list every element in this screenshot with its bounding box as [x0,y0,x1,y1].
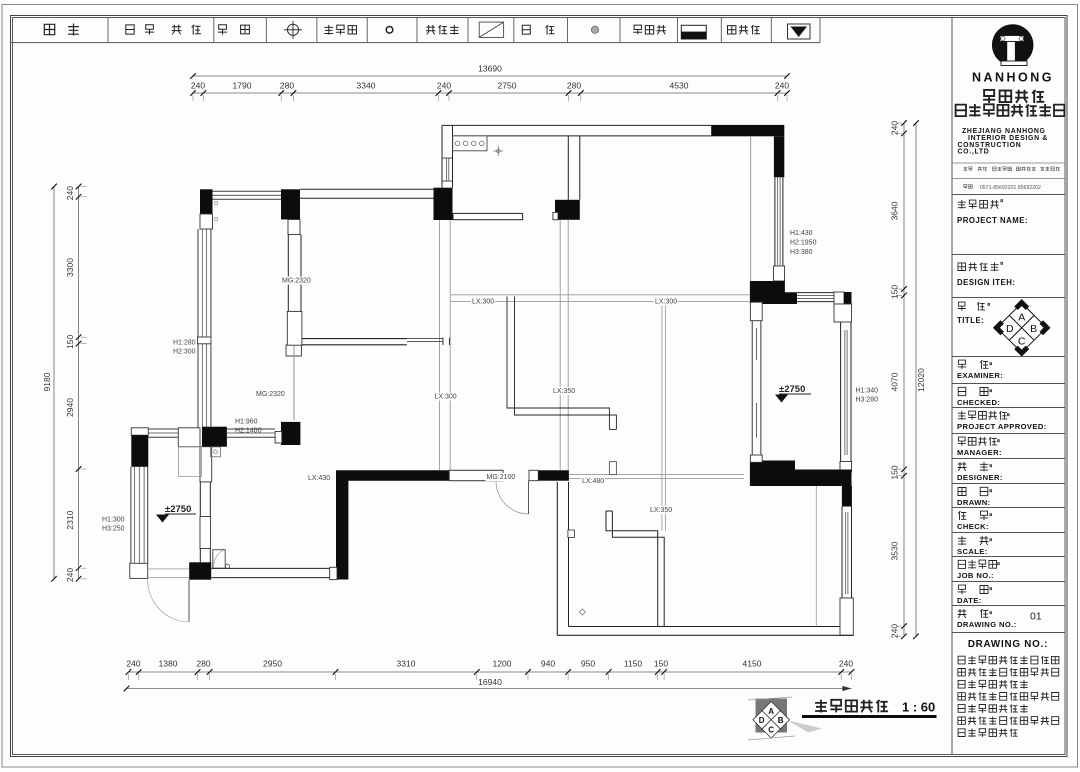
svg-text:280: 280 [196,659,210,669]
svg-text:H1:340: H1:340 [856,388,879,395]
svg-text:3300: 3300 [65,258,75,277]
svg-text:H2:1950: H2:1950 [790,240,817,247]
svg-text:DESIGN ITEH:: DESIGN ITEH: [957,278,1015,287]
svg-text:LX:300: LX:300 [435,394,457,401]
svg-text:280: 280 [280,81,294,91]
svg-text:CHECKED:: CHECKED: [957,398,1000,407]
svg-text:LX:430: LX:430 [308,475,330,482]
svg-text:DATE:: DATE: [957,596,982,605]
svg-text:INTERIOR DESIGN &: INTERIOR DESIGN & [968,135,1048,142]
svg-text:1790: 1790 [233,81,252,91]
svg-text:4070: 4070 [890,372,900,391]
svg-text:LX:300: LX:300 [655,299,677,306]
svg-text:240: 240 [890,121,900,135]
svg-text:DRAWN:: DRAWN: [957,498,991,507]
svg-text:LX:480: LX:480 [582,478,604,485]
svg-text:CO.,LTD: CO.,LTD [958,149,990,156]
svg-text:H1:300: H1:300 [102,517,125,524]
svg-text:150: 150 [65,335,75,349]
svg-text:±2750: ±2750 [165,504,191,515]
svg-text:280: 280 [567,81,581,91]
svg-text:1 : 60: 1 : 60 [902,700,935,715]
svg-text:1150: 1150 [624,659,643,669]
svg-text:H3:280: H3:280 [856,397,879,404]
svg-text:3640: 3640 [890,201,900,220]
svg-text:240: 240 [839,659,853,669]
svg-text:ZHEJIANG NANHONG: ZHEJIANG NANHONG [962,128,1046,135]
svg-text:EXAMINER:: EXAMINER: [957,371,1003,380]
svg-text:01: 01 [1030,611,1042,623]
svg-text:240: 240 [65,568,75,582]
svg-text:9180: 9180 [42,372,52,391]
svg-text:H2:1400: H2:1400 [235,428,262,435]
svg-text:A: A [768,707,774,716]
svg-text:B: B [1030,323,1037,335]
svg-text:3310: 3310 [397,659,416,669]
svg-text:3340: 3340 [357,81,376,91]
svg-text:2950: 2950 [263,659,282,669]
svg-text:240: 240 [191,81,205,91]
svg-text:12020: 12020 [916,368,926,392]
svg-text:3530: 3530 [890,541,900,560]
svg-text:LX:300: LX:300 [472,299,494,306]
svg-text:D: D [1006,323,1014,335]
svg-text:H3:380: H3:380 [790,249,813,256]
svg-text:2940: 2940 [65,398,75,417]
svg-text:H1:960: H1:960 [235,419,258,426]
svg-text:150: 150 [654,659,668,669]
svg-text:CHECK:: CHECK: [957,522,989,531]
svg-text:SCALE:: SCALE: [957,547,988,556]
svg-text:2750: 2750 [498,81,517,91]
svg-text:MG:2100: MG:2100 [487,474,516,481]
svg-text:MANAGER:: MANAGER: [957,448,1002,457]
svg-text:H2:300: H2:300 [173,349,196,356]
svg-text:JOB NO.:: JOB NO.: [957,571,994,580]
svg-text:1380: 1380 [159,659,178,669]
svg-text:PROJECT APPROVED:: PROJECT APPROVED: [957,422,1047,431]
svg-text:0571-85692201 85692202: 0571-85692201 85692202 [980,185,1041,191]
svg-text:240: 240 [437,81,451,91]
svg-text:240: 240 [775,81,789,91]
svg-text:C: C [768,726,774,735]
svg-text:B: B [778,716,784,725]
svg-text:D: D [759,716,765,725]
svg-text:950: 950 [581,659,595,669]
svg-text:150: 150 [890,465,900,479]
svg-text:NANHONG: NANHONG [972,71,1054,85]
svg-text:4530: 4530 [670,81,689,91]
svg-text:TITLE:: TITLE: [957,316,984,325]
svg-text:PROJECT NAME:: PROJECT NAME: [957,216,1028,225]
svg-text:MG:2320: MG:2320 [256,391,285,398]
svg-text:C: C [1018,335,1026,347]
svg-text:1200: 1200 [493,659,512,669]
svg-text:MG:2320: MG:2320 [282,278,311,285]
svg-text:H1:430: H1:430 [790,230,813,237]
svg-text:DESIGNER:: DESIGNER: [957,473,1003,482]
svg-text:240: 240 [65,186,75,200]
svg-text:LX:350: LX:350 [553,388,575,395]
svg-text:13690: 13690 [478,64,502,74]
svg-text:4150: 4150 [743,659,762,669]
svg-text:240: 240 [890,624,900,638]
svg-text:±2750: ±2750 [779,384,805,395]
svg-text:240: 240 [126,659,140,669]
svg-text:DRAWING NO.:: DRAWING NO.: [968,639,1048,650]
svg-text:DRAWING NO.:: DRAWING NO.: [957,620,1017,629]
svg-text:LX:350: LX:350 [650,507,672,514]
svg-text:150: 150 [890,285,900,299]
svg-text:16940: 16940 [478,677,502,687]
svg-text:2310: 2310 [65,510,75,529]
svg-text:940: 940 [541,659,555,669]
svg-text:H3:250: H3:250 [102,526,125,533]
svg-text:A: A [1018,312,1025,324]
svg-text:H1:280: H1:280 [173,340,196,347]
